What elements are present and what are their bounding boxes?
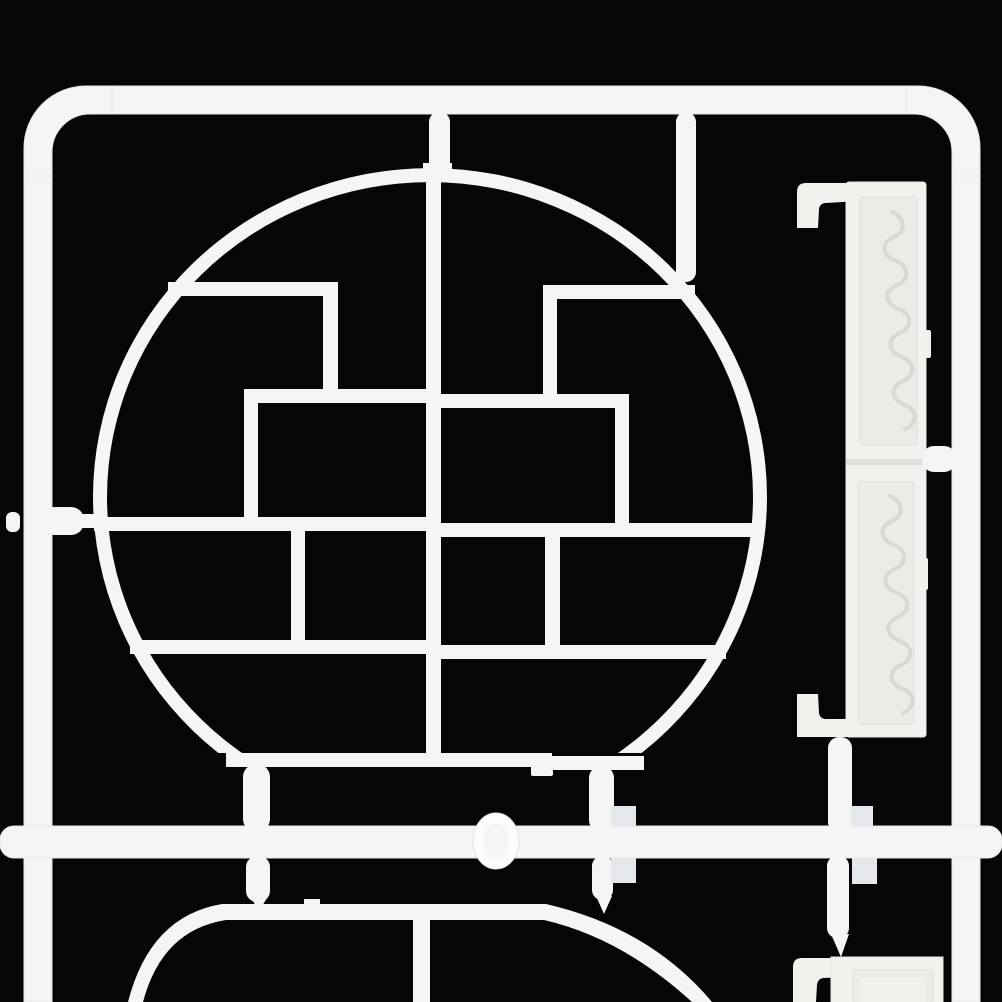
lower-panel-center-bar	[413, 918, 430, 1002]
shelf-bar-top-right	[543, 285, 695, 299]
shelf-bar-bottom-right	[441, 645, 726, 659]
gate-bottom-right	[589, 766, 614, 832]
post-mid-left	[244, 401, 258, 519]
runner-knob-highlight	[483, 823, 509, 859]
circle-center-bar	[426, 170, 441, 767]
post-lower-right	[545, 535, 560, 648]
shelf-bar-top-left	[168, 282, 338, 296]
frame-left-rail	[24, 176, 52, 1002]
frame-top-rail	[110, 86, 908, 114]
sprue-photo-frame	[0, 0, 1002, 1002]
gate-strip-to-rail	[922, 446, 956, 472]
circle-flat-bottom-left	[226, 753, 552, 767]
side-strip-tab-upper	[919, 330, 931, 358]
side-strip-tab-lower	[914, 558, 928, 590]
product-photo	[0, 0, 1002, 1002]
shelf-bar-middle-right	[441, 523, 764, 537]
gate-left-rail-bump	[6, 512, 20, 532]
post-mid-right	[615, 406, 629, 525]
lower-panel-top-step	[304, 899, 320, 908]
molding-tab-left-lower	[611, 858, 636, 883]
frame-right-rail	[952, 176, 980, 1002]
shelf-bar-middle-left	[94, 517, 426, 531]
shelf-bar-upper-right	[441, 394, 629, 408]
gate-lower-panel-right	[592, 856, 613, 900]
gate-lower-panel-left	[246, 856, 270, 902]
gate-corner-strip	[827, 856, 849, 938]
corner-strip-plaque	[861, 978, 925, 1002]
sprue-photo-svg	[0, 0, 1002, 1002]
circle-bottom-foot	[531, 764, 553, 776]
molding-tab-right-lower	[852, 858, 877, 884]
gate-left-bulge	[42, 507, 84, 535]
gate-top-right	[676, 112, 696, 282]
molding-tab-left-upper	[611, 806, 636, 827]
gate-strip-bottom	[828, 737, 852, 833]
post-top-left	[323, 294, 338, 391]
post-lower-left	[291, 529, 305, 642]
shelf-bar-upper-left	[244, 389, 426, 403]
lower-panel-flat-top	[222, 904, 546, 920]
gate-top-center	[429, 112, 450, 174]
side-strip-divider	[846, 459, 926, 465]
shelf-bar-bottom-left	[130, 640, 426, 654]
molding-tab-right-upper	[851, 806, 873, 827]
gate-bottom-left	[243, 764, 270, 832]
post-top-right	[543, 297, 557, 396]
